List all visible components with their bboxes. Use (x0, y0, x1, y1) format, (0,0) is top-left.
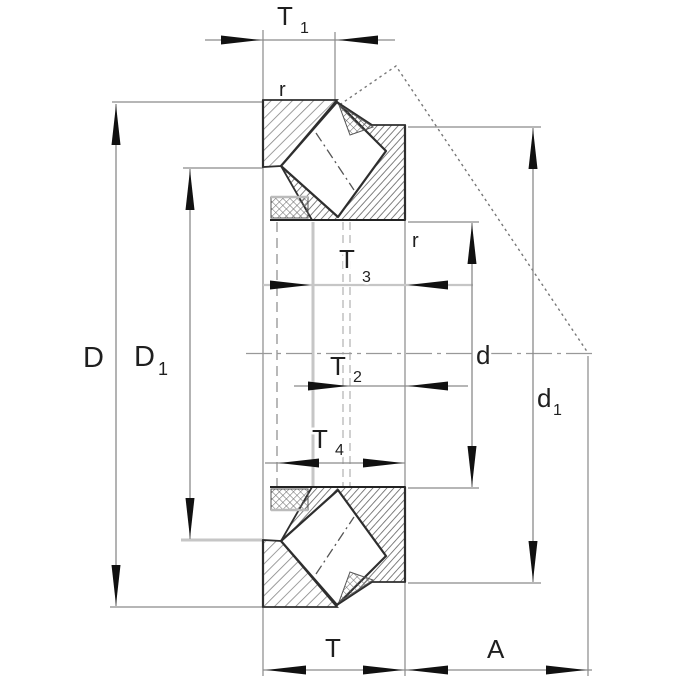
arrowhead (363, 666, 403, 675)
dim-t1: T 1 (205, 1, 395, 45)
label-T3: T (339, 244, 355, 274)
arrowhead (529, 541, 538, 581)
label-D: D (83, 342, 104, 374)
label-d1-sub: 1 (553, 402, 562, 419)
label-T2-sub: 2 (353, 369, 362, 386)
label-T2: T (330, 351, 346, 381)
arrowhead (308, 382, 348, 391)
dim-d1: d 1 (529, 128, 563, 582)
label-r-top: r (279, 79, 286, 101)
cage-segment-top-left (271, 197, 308, 218)
label-T3-sub: 3 (362, 269, 371, 286)
arrowhead (186, 498, 195, 538)
arrowhead (338, 36, 378, 45)
dim-t-and-a: T A (263, 633, 592, 675)
arrowhead (408, 281, 448, 290)
label-T1: T (277, 1, 293, 31)
label-D1: D (134, 341, 155, 373)
arrowhead (529, 129, 538, 169)
bearing-dimension-drawing: T 1 r r T 3 T 2 T 4 D D 1 (0, 0, 680, 680)
label-A: A (487, 634, 505, 664)
arrowhead (468, 446, 477, 486)
cage-segment-bottom-left (271, 489, 308, 510)
label-r-mid: r (412, 230, 419, 252)
arrowhead (186, 170, 195, 210)
label-T4: T (312, 424, 328, 454)
drawing-canvas: T 1 r r T 3 T 2 T 4 D D 1 (0, 0, 680, 680)
arrowhead (221, 36, 261, 45)
arrowhead (408, 666, 448, 675)
label-T: T (325, 633, 341, 663)
label-T1-sub: 1 (300, 20, 309, 37)
arrowhead (468, 224, 477, 264)
arrowhead (363, 459, 403, 468)
bearing-top-section (263, 100, 405, 220)
arrowhead (408, 382, 448, 391)
dim-t4: T 4 (265, 424, 405, 468)
label-d: d (476, 340, 490, 370)
label-D1-sub: 1 (158, 359, 168, 379)
arrowhead (112, 105, 121, 145)
label-d1: d (537, 383, 551, 413)
arrowhead (112, 565, 121, 605)
label-T4-sub: 4 (335, 442, 344, 459)
dim-D: D (83, 104, 121, 606)
dim-d: d (468, 223, 491, 487)
bearing-bottom-section (263, 487, 405, 607)
arrowhead (546, 666, 586, 675)
arrowhead (279, 459, 319, 468)
dim-t2: T 2 (294, 351, 468, 391)
arrowhead (270, 281, 310, 290)
dim-D1: D 1 (134, 169, 195, 539)
arrowhead (266, 666, 306, 675)
dim-t3: T 3 (263, 244, 473, 290)
